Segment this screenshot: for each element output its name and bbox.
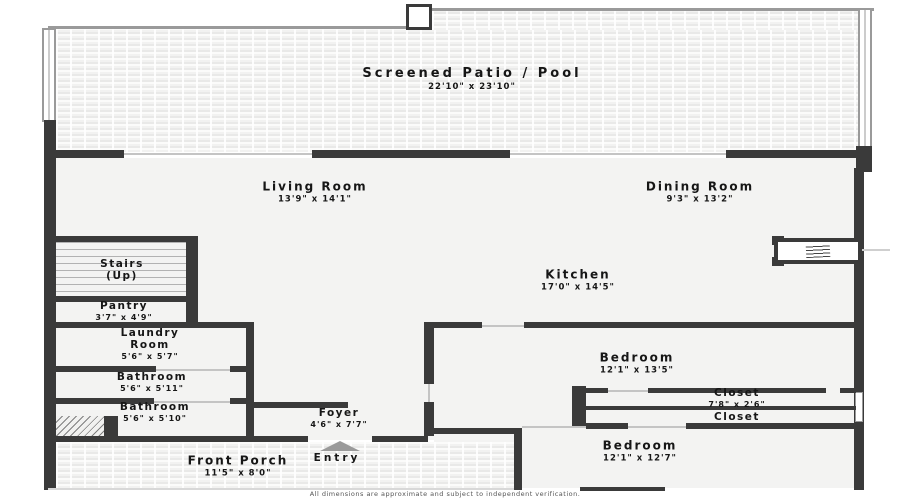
wall-bedroom-lower-west — [514, 428, 522, 490]
laundry-dims: 5'6" x 5'7" — [107, 352, 193, 361]
bedroom-lower-dims: 12'1" x 12'7" — [603, 455, 678, 465]
bathroom-upper-dims: 5'6" x 5'11" — [117, 384, 187, 393]
bedroom-west-door-opening — [428, 384, 430, 402]
bedroom-lower-door-opening — [522, 426, 586, 428]
wall-closet-top-3 — [840, 388, 856, 393]
dining-room-name: Dining Room — [646, 181, 754, 195]
wall-exterior-right — [854, 168, 864, 490]
living-room-label: Living Room 13'9" x 14'1" — [262, 181, 367, 206]
kitchen-dims: 17'0" x 14'5" — [541, 284, 615, 294]
wall-kitchen-bedroom-2 — [524, 322, 858, 328]
wall-entry-right — [372, 436, 428, 442]
fireplace-icon — [806, 244, 831, 258]
wall-hall-vertical — [246, 322, 254, 436]
entry-label: Entry — [314, 452, 361, 464]
front-porch-name: Front Porch — [188, 455, 289, 469]
right-patio-window — [858, 8, 872, 148]
right-wall-window — [855, 392, 863, 422]
bathroom-lower-label: Bathroom 5'6" x 5'10" — [120, 401, 190, 423]
closet-lower-door-opening — [628, 426, 686, 428]
front-porch-label: Front Porch 11'5" x 8'0" — [188, 455, 289, 480]
pantry-dims: 3'7" x 4'9" — [95, 313, 152, 322]
patio-dims: 22'10" x 23'10" — [362, 83, 581, 93]
living-room-dims: 13'9" x 14'1" — [262, 196, 367, 206]
living-room-name: Living Room — [262, 181, 367, 195]
pantry-name: Pantry — [95, 300, 152, 312]
bedroom-upper-door-opening — [482, 325, 524, 327]
stairs-name: Stairs (Up) — [91, 258, 153, 282]
wall-hall-bottom — [424, 428, 522, 434]
foyer-dims: 4'6" x 7'7" — [310, 420, 367, 429]
wall-closet-top-1 — [586, 388, 608, 393]
understair-storage-wall — [104, 416, 118, 438]
entry-arrow-icon — [320, 441, 360, 451]
patio-column — [406, 4, 432, 30]
laundry-label: Laundry Room 5'6" x 5'7" — [107, 327, 193, 361]
closet-upper-label: Closet 7'8" x 2'6" — [708, 387, 765, 409]
left-patio-window — [42, 28, 56, 122]
kitchen-label: Kitchen 17'0" x 14'5" — [541, 269, 615, 294]
wall-entry-left — [254, 436, 308, 442]
wall-bedroom-west-1 — [424, 322, 434, 384]
wall-stairs-right — [186, 236, 198, 328]
entry-name: Entry — [314, 452, 361, 464]
disclaimer-text: All dimensions are approximate and subje… — [310, 490, 581, 498]
dining-room-dims: 9'3" x 13'2" — [646, 196, 754, 206]
bedroom-lower-name: Bedroom — [603, 440, 678, 454]
wall-patio-south-1 — [44, 150, 124, 158]
closet-upper-dims: 7'8" x 2'6" — [708, 400, 765, 409]
wall-patio-south-3 — [726, 150, 866, 158]
bedroom-upper-name: Bedroom — [600, 352, 675, 366]
bedroom-upper-label: Bedroom 12'1" x 13'5" — [600, 352, 675, 377]
patio-name: Screened Patio / Pool — [362, 67, 581, 82]
pantry-label: Pantry 3'7" x 4'9" — [95, 300, 152, 322]
closet-upper-door-opening — [608, 390, 648, 392]
stairs-label: Stairs (Up) — [91, 258, 153, 282]
closet-lower-label: Closet — [714, 411, 760, 423]
wall-closet-left-block — [572, 386, 586, 428]
wall-closet-bottom-1 — [586, 423, 628, 429]
bathroom-lower-name: Bathroom — [120, 401, 190, 413]
bedroom-upper-dims: 12'1" x 13'5" — [600, 367, 675, 377]
kitchen-name: Kitchen — [541, 269, 615, 283]
wall-stairs-top — [44, 236, 196, 242]
patio-screen-top-right — [420, 8, 874, 11]
wall-exterior-left — [44, 120, 56, 490]
foyer-name: Foyer — [310, 407, 367, 419]
dining-room-label: Dining Room 9'3" x 13'2" — [646, 181, 754, 206]
bathroom-lower-dims: 5'6" x 5'10" — [120, 414, 190, 423]
bathroom-upper-label: Bathroom 5'6" x 5'11" — [117, 371, 187, 393]
bedroom-lower-label: Bedroom 12'1" x 12'7" — [603, 440, 678, 465]
closet-lower-name: Closet — [714, 411, 760, 423]
wall-bottom-stub — [580, 487, 665, 491]
patio-label: Screened Patio / Pool 22'10" x 23'10" — [362, 67, 581, 93]
understair-storage-hatch — [56, 416, 104, 438]
sliding-door-right — [510, 153, 726, 155]
fireplace — [774, 238, 862, 264]
floor-plan-canvas: Screened Patio / Pool 22'10" x 23'10" Li… — [0, 0, 900, 500]
sliding-door-left — [124, 153, 312, 155]
closet-upper-name: Closet — [708, 387, 765, 399]
fireplace-extension-line — [862, 249, 890, 251]
laundry-name: Laundry Room — [107, 327, 193, 351]
wall-patio-south-2 — [312, 150, 510, 158]
wall-house-bottom-left — [44, 436, 254, 442]
patio-floor-upper-strip — [432, 10, 860, 30]
patio-screen-top-left — [48, 26, 420, 29]
foyer-label: Foyer 4'6" x 7'7" — [310, 407, 367, 429]
bathroom-upper-name: Bathroom — [117, 371, 187, 383]
front-porch-dims: 11'5" x 8'0" — [188, 470, 289, 480]
wall-closet-bottom-2 — [686, 423, 856, 429]
